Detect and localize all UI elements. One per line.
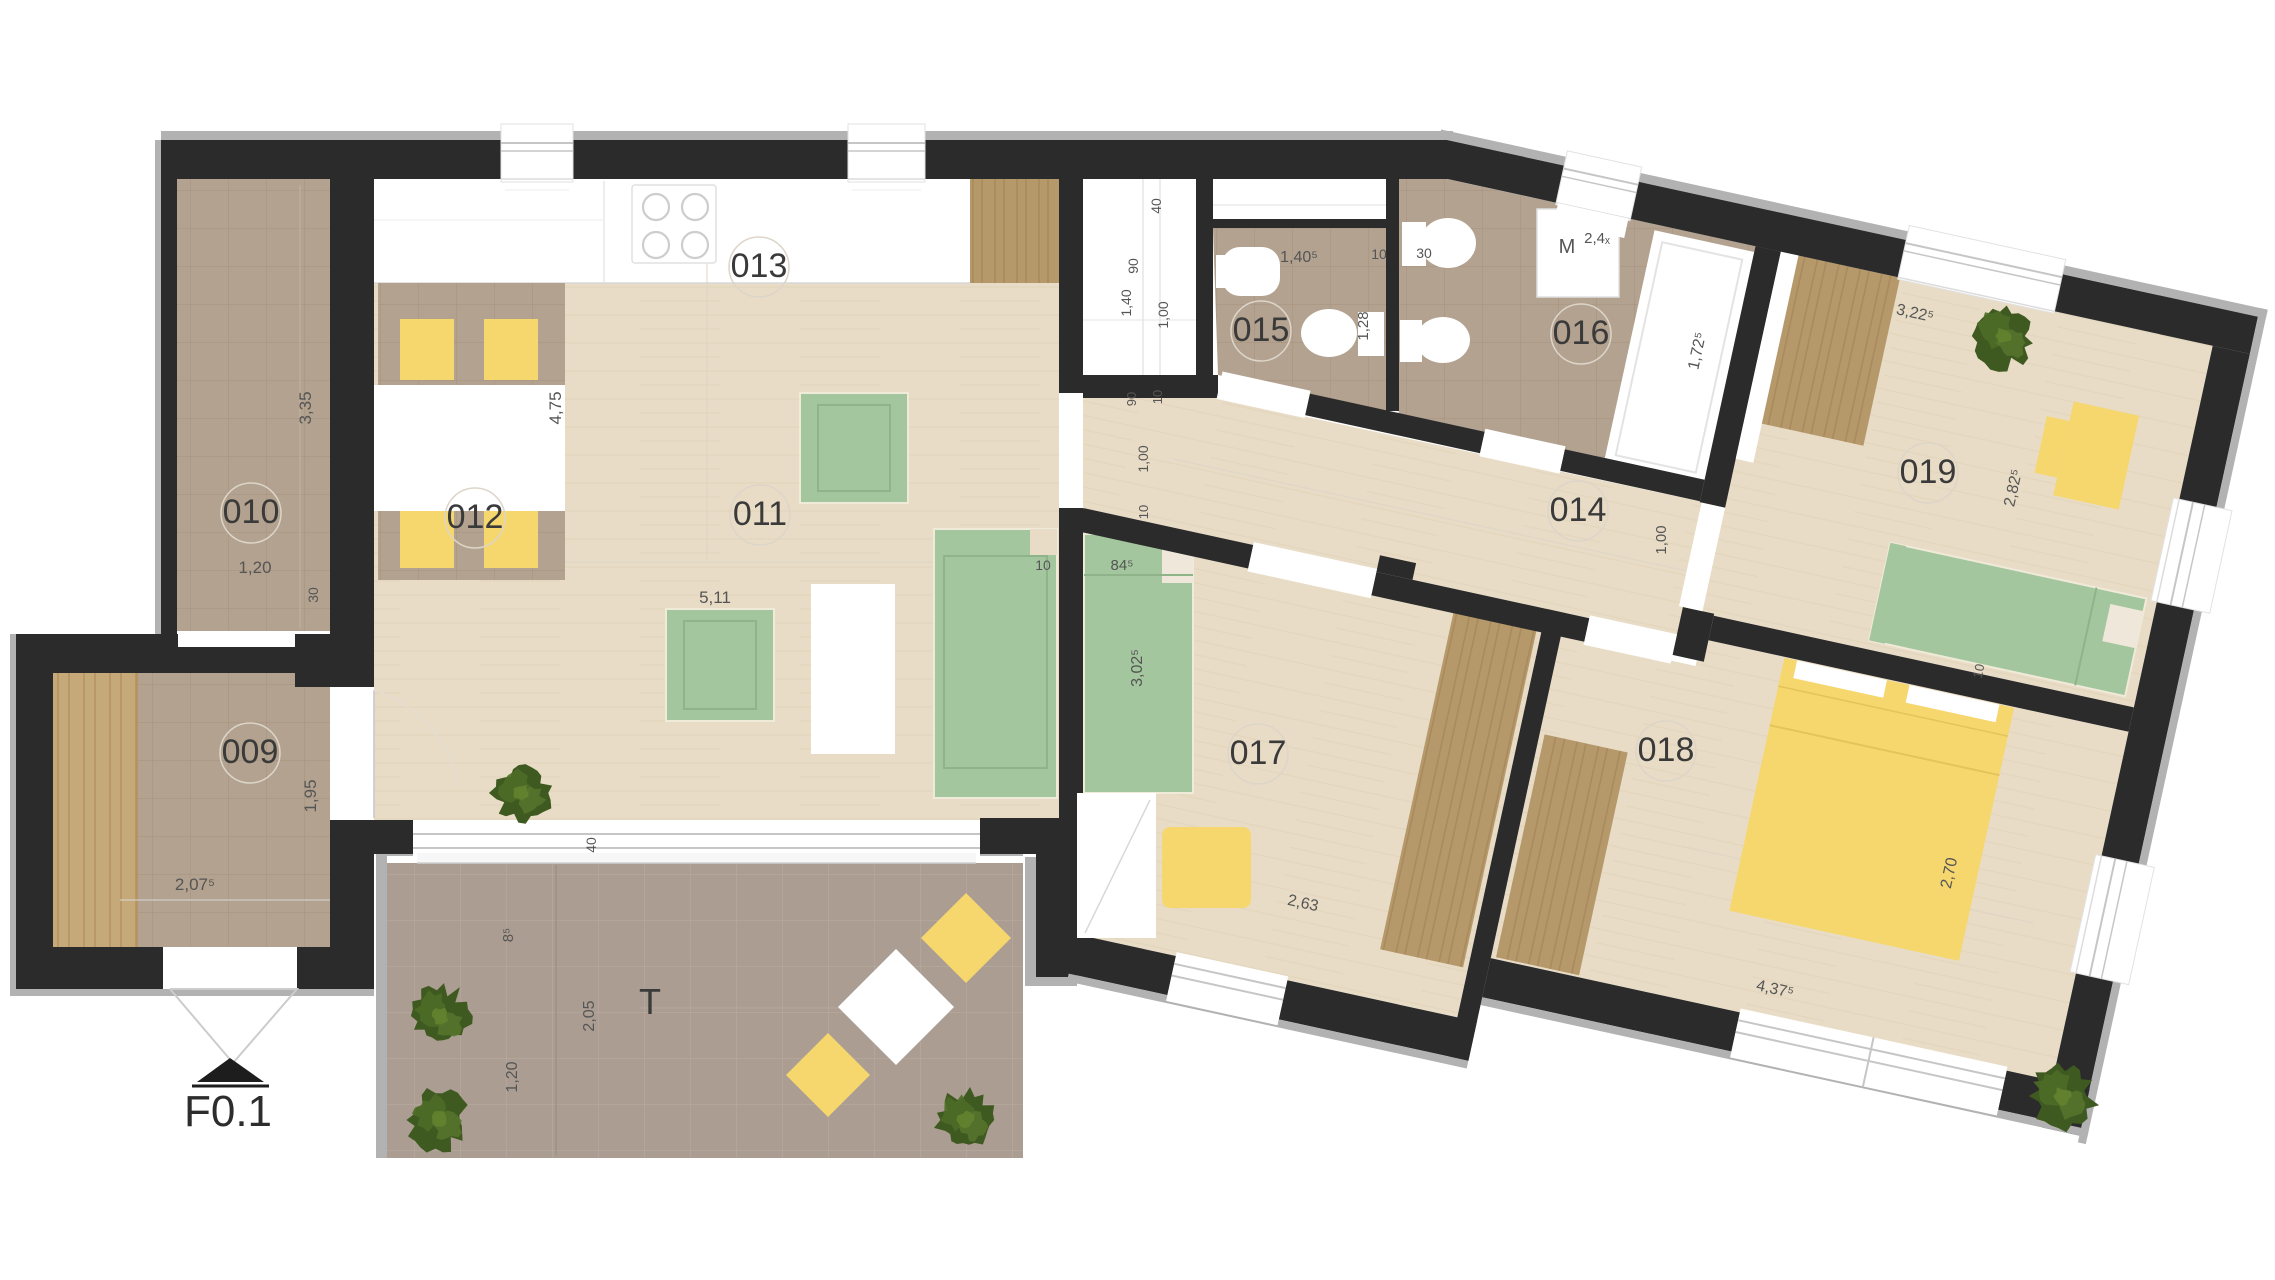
svg-text:1,40⁵: 1,40⁵	[1280, 249, 1318, 266]
svg-text:010: 010	[223, 493, 280, 531]
svg-text:30: 30	[305, 587, 321, 603]
svg-text:3,02⁵: 3,02⁵	[1129, 649, 1146, 687]
svg-text:8⁵: 8⁵	[500, 928, 517, 943]
svg-text:009: 009	[222, 733, 279, 771]
svg-text:1,00: 1,00	[1653, 525, 1670, 554]
svg-text:016: 016	[1553, 314, 1610, 352]
svg-text:1,28: 1,28	[1355, 311, 1372, 340]
svg-text:1,20: 1,20	[238, 558, 271, 577]
svg-text:011: 011	[733, 495, 787, 533]
svg-text:30: 30	[1416, 245, 1432, 261]
svg-text:1,95: 1,95	[301, 779, 320, 812]
svg-text:018: 018	[1638, 731, 1695, 769]
svg-text:40: 40	[1148, 198, 1164, 214]
svg-text:3,35: 3,35	[296, 391, 315, 424]
svg-text:40: 40	[583, 837, 599, 853]
svg-text:10: 10	[1136, 505, 1151, 519]
svg-text:4,75: 4,75	[546, 391, 565, 424]
svg-text:90: 90	[1124, 392, 1139, 406]
svg-text:017: 017	[1230, 734, 1287, 772]
svg-text:2,05: 2,05	[581, 1000, 598, 1031]
svg-text:013: 013	[731, 247, 788, 285]
svg-text:1,00: 1,00	[1155, 301, 1171, 328]
svg-text:10: 10	[1150, 390, 1165, 404]
svg-text:F0.1: F0.1	[184, 1087, 272, 1136]
svg-text:T: T	[639, 981, 661, 1022]
svg-text:019: 019	[1900, 453, 1957, 491]
svg-text:90: 90	[1125, 258, 1141, 274]
svg-text:1,40: 1,40	[1118, 289, 1134, 316]
svg-text:5,11: 5,11	[699, 588, 731, 607]
svg-text:10: 10	[1371, 246, 1387, 262]
svg-text:M: M	[1559, 236, 1576, 258]
svg-text:1,20: 1,20	[504, 1061, 521, 1092]
svg-text:2,4ₓ: 2,4ₓ	[1584, 230, 1610, 247]
svg-text:015: 015	[1233, 311, 1290, 349]
svg-text:012: 012	[447, 498, 504, 536]
svg-text:014: 014	[1550, 491, 1607, 529]
svg-text:10: 10	[1035, 557, 1051, 573]
svg-text:2,07⁵: 2,07⁵	[175, 875, 215, 894]
svg-text:1,00: 1,00	[1135, 445, 1151, 472]
svg-text:84⁵: 84⁵	[1111, 557, 1134, 574]
